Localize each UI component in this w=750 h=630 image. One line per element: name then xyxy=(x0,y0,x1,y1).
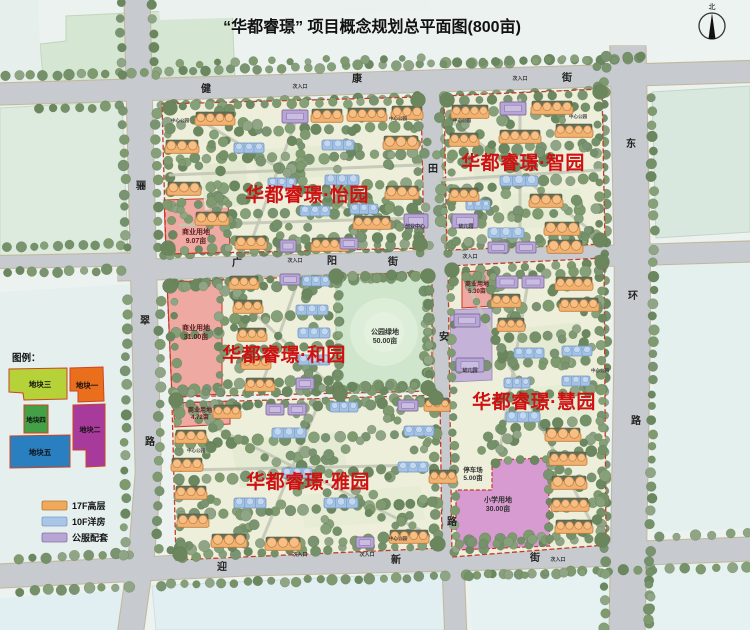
svg-text:街: 街 xyxy=(387,255,398,268)
svg-text:停车场: 停车场 xyxy=(463,465,483,474)
svg-text:“华都睿璟” 项目概念规划总平面图(800亩): “华都睿璟” 项目概念规划总平面图(800亩) xyxy=(223,17,521,36)
svg-text:9.07亩: 9.07亩 xyxy=(186,236,207,245)
svg-text:5.30亩: 5.30亩 xyxy=(468,287,486,295)
svg-text:地块一: 地块一 xyxy=(76,380,99,390)
svg-text:公园绿地: 公园绿地 xyxy=(371,327,399,336)
svg-text:中心公园: 中心公园 xyxy=(171,117,189,124)
svg-text:中心公园: 中心公园 xyxy=(453,117,471,124)
svg-text:创业中心: 创业中心 xyxy=(404,223,425,230)
svg-text:骊: 骊 xyxy=(136,180,146,192)
svg-text:街: 街 xyxy=(561,71,572,84)
svg-text:次入口: 次入口 xyxy=(512,75,527,82)
svg-text:次入口: 次入口 xyxy=(292,83,307,90)
svg-text:5.00亩: 5.00亩 xyxy=(463,473,483,482)
svg-text:华都睿璟·雅园: 华都睿璟·雅园 xyxy=(246,470,370,493)
svg-text:31.00亩: 31.00亩 xyxy=(184,332,209,341)
svg-text:17F高层: 17F高层 xyxy=(72,500,106,511)
svg-text:北: 北 xyxy=(709,3,716,11)
svg-text:东: 东 xyxy=(626,137,636,150)
svg-text:华都睿璟·智园: 华都睿璟·智园 xyxy=(461,151,585,174)
svg-text:健: 健 xyxy=(201,82,211,95)
svg-text:地块二: 地块二 xyxy=(80,425,101,434)
svg-text:安: 安 xyxy=(439,330,449,343)
svg-text:康: 康 xyxy=(352,72,363,85)
svg-text:次入口: 次入口 xyxy=(550,556,565,563)
svg-text:幼儿园: 幼儿园 xyxy=(462,367,477,374)
svg-text:次入口: 次入口 xyxy=(287,257,302,264)
svg-text:路: 路 xyxy=(145,435,156,448)
svg-text:中心公园: 中心公园 xyxy=(591,367,609,374)
svg-text:中心公园: 中心公园 xyxy=(389,115,407,122)
svg-text:幼儿园: 幼儿园 xyxy=(458,223,473,230)
svg-text:新: 新 xyxy=(391,553,401,566)
svg-text:阳: 阳 xyxy=(327,255,337,267)
svg-text:商业用地: 商业用地 xyxy=(465,280,489,288)
svg-text:迎: 迎 xyxy=(217,560,227,573)
svg-text:商业用地: 商业用地 xyxy=(182,227,210,236)
svg-text:次入口: 次入口 xyxy=(359,551,374,558)
svg-text:次入口: 次入口 xyxy=(462,253,477,260)
svg-text:次入口: 次入口 xyxy=(292,551,307,558)
svg-text:10F洋房: 10F洋房 xyxy=(72,516,106,527)
svg-text:图例：: 图例： xyxy=(12,352,41,364)
svg-text:商业用地: 商业用地 xyxy=(188,406,212,414)
svg-text:50.00亩: 50.00亩 xyxy=(373,336,398,345)
svg-text:华都睿璟·慧园: 华都睿璟·慧园 xyxy=(472,390,596,413)
svg-text:公服配套: 公服配套 xyxy=(72,532,109,543)
svg-text:田: 田 xyxy=(428,163,438,175)
svg-text:地块三: 地块三 xyxy=(29,379,52,389)
svg-text:中心公园: 中心公园 xyxy=(187,447,205,454)
svg-text:翠: 翠 xyxy=(140,315,150,327)
svg-text:30.00亩: 30.00亩 xyxy=(486,504,511,513)
svg-text:广: 广 xyxy=(232,256,242,269)
svg-text:街: 街 xyxy=(529,551,540,564)
svg-text:地块四: 地块四 xyxy=(26,415,46,424)
svg-text:地块五: 地块五 xyxy=(29,447,52,457)
svg-text:华都睿璟·和园: 华都睿璟·和园 xyxy=(222,343,346,366)
svg-text:环: 环 xyxy=(628,290,638,302)
svg-text:华都睿璟·怡园: 华都睿璟·怡园 xyxy=(245,183,369,206)
svg-text:商业用地: 商业用地 xyxy=(182,323,210,332)
svg-text:路: 路 xyxy=(631,414,642,427)
svg-text:路: 路 xyxy=(447,515,458,528)
svg-text:4.72亩: 4.72亩 xyxy=(191,413,209,421)
svg-text:中心公园: 中心公园 xyxy=(389,535,407,542)
svg-text:小学用地: 小学用地 xyxy=(483,495,512,504)
svg-text:中心公园: 中心公园 xyxy=(569,113,587,120)
